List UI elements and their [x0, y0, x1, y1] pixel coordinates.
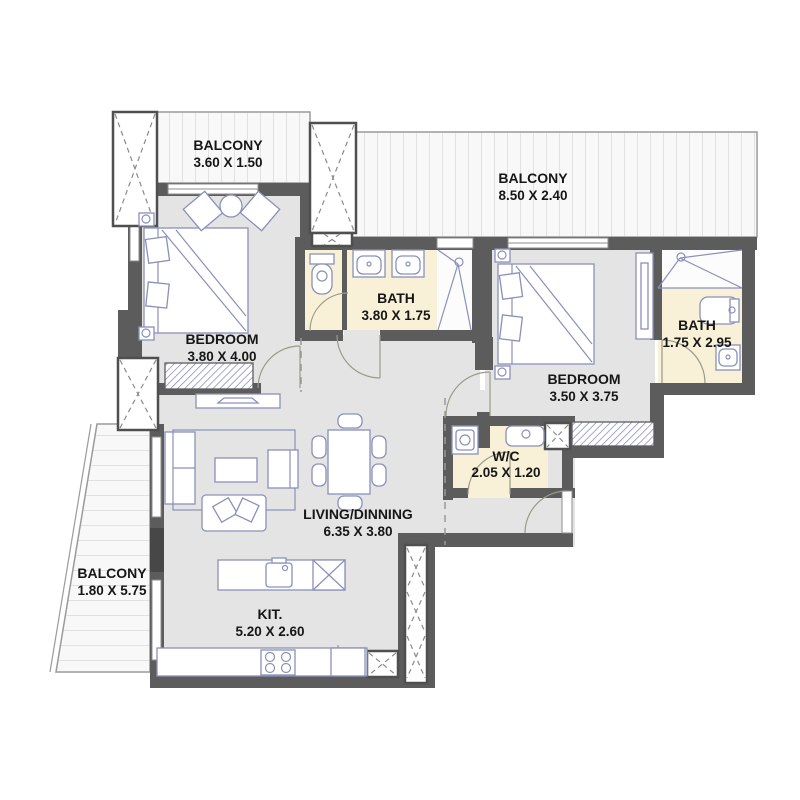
balcony-left: [50, 424, 150, 672]
shaft-right-of-wc: [545, 423, 570, 449]
bed: [144, 228, 248, 333]
svg-text:BATH: BATH: [377, 290, 415, 306]
svg-text:3.80 X 1.75: 3.80 X 1.75: [361, 308, 431, 323]
svg-text:5.20 X 2.60: 5.20 X 2.60: [235, 624, 304, 639]
tv-console: [196, 394, 280, 408]
shaft-right-strip: [405, 545, 427, 683]
svg-text:3.80 X 4.00: 3.80 X 4.00: [187, 349, 256, 364]
bed: [498, 264, 594, 364]
svg-text:3.60 X 1.50: 3.60 X 1.50: [193, 155, 262, 170]
svg-text:BEDROOM: BEDROOM: [185, 331, 258, 347]
svg-text:1.80 X 5.75: 1.80 X 5.75: [77, 583, 147, 598]
svg-text:1.75 X 2.95: 1.75 X 2.95: [662, 335, 732, 350]
shaft-left-middle: [118, 358, 158, 430]
basin: [506, 426, 544, 446]
fridge: [331, 645, 365, 676]
loveseat: [202, 495, 266, 531]
armchair: [268, 450, 298, 488]
stove: [261, 650, 295, 675]
svg-text:BATH: BATH: [678, 317, 716, 333]
svg-text:2.05 X 1.20: 2.05 X 1.20: [471, 465, 540, 480]
kitchen-island: [218, 558, 345, 590]
svg-text:BALCONY: BALCONY: [77, 565, 147, 581]
svg-text:8.50 X 2.40: 8.50 X 2.40: [498, 188, 567, 203]
floor-plan-drawing: BALCONY 3.60 X 1.50 BALCONY 8.50 X 2.40 …: [0, 0, 800, 800]
shaft-top-left: [113, 112, 157, 226]
shaft-kitchen-bottom: [367, 651, 398, 677]
sofa: [165, 432, 195, 504]
svg-text:W/C: W/C: [492, 448, 519, 464]
wardrobe: [572, 422, 654, 446]
svg-text:BEDROOM: BEDROOM: [547, 371, 620, 387]
svg-text:KIT.: KIT.: [258, 606, 283, 622]
svg-text:LIVING/DINNING: LIVING/DINNING: [303, 506, 413, 522]
svg-text:6.35 X 3.80: 6.35 X 3.80: [323, 524, 392, 539]
sliding-door-panel: [150, 528, 164, 572]
coffee-table: [215, 458, 257, 482]
svg-text:3.50 X 3.75: 3.50 X 3.75: [549, 389, 619, 404]
svg-text:BALCONY: BALCONY: [193, 137, 263, 153]
svg-text:BALCONY: BALCONY: [498, 170, 568, 186]
tv-panel: [636, 253, 653, 339]
floor-plan-canvas: BALCONY 3.60 X 1.50 BALCONY 8.50 X 2.40 …: [0, 0, 800, 800]
shaft-top-middle: [310, 123, 356, 246]
wardrobe: [165, 363, 253, 389]
washer: [452, 426, 478, 454]
toilet: [310, 254, 334, 294]
kitchen-counter: [157, 645, 367, 676]
